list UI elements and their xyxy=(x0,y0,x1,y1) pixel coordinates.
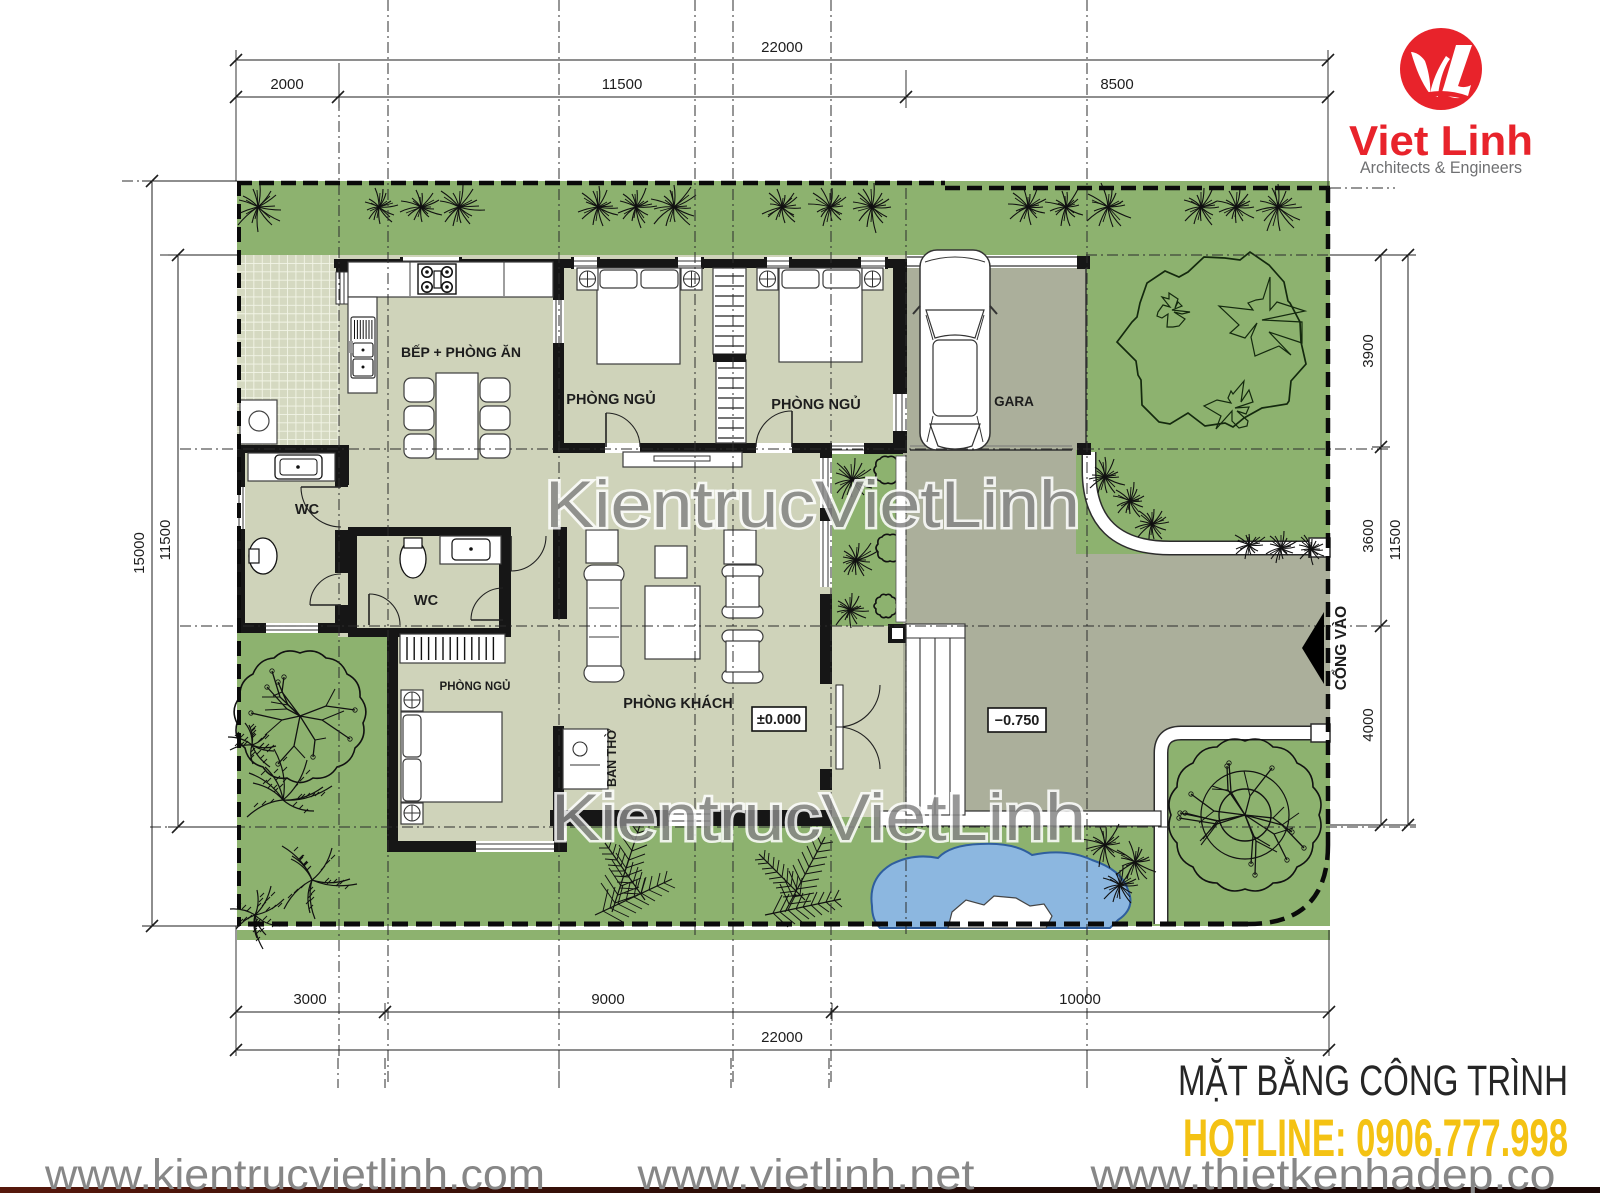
svg-text:Viet Linh: Viet Linh xyxy=(1349,117,1533,164)
svg-text:9000: 9000 xyxy=(591,991,624,1008)
svg-text:PHÒNG NGỦ: PHÒNG NGỦ xyxy=(771,395,860,413)
svg-text:BẾP + PHÒNG ĂN: BẾP + PHÒNG ĂN xyxy=(401,343,521,360)
svg-text:www.thietkenhadep.co: www.thietkenhadep.co xyxy=(1089,1151,1555,1193)
svg-text:KientrucVietLinh: KientrucVietLinh xyxy=(551,780,1086,854)
svg-text:10000: 10000 xyxy=(1059,991,1101,1008)
svg-text:www.kientrucvietlinh.com: www.kientrucvietlinh.com xyxy=(44,1151,545,1193)
svg-text:−0.750: −0.750 xyxy=(995,713,1040,729)
svg-text:CỔNG VÀO: CỔNG VÀO xyxy=(1332,606,1350,690)
svg-text:PHÒNG NGỦ: PHÒNG NGỦ xyxy=(566,390,655,408)
svg-text:www.vietlinh.net: www.vietlinh.net xyxy=(636,1151,974,1193)
svg-text:22000: 22000 xyxy=(761,39,803,56)
svg-text:3600: 3600 xyxy=(1360,519,1377,552)
svg-text:BAN THỜ: BAN THỜ xyxy=(604,729,619,787)
svg-text:3900: 3900 xyxy=(1360,334,1377,367)
svg-text:11500: 11500 xyxy=(157,520,174,561)
svg-text:KientrucVietLinh: KientrucVietLinh xyxy=(545,467,1080,541)
svg-text:PHÒNG KHÁCH: PHÒNG KHÁCH xyxy=(623,694,733,712)
svg-text:4000: 4000 xyxy=(1360,708,1377,741)
svg-text:WC: WC xyxy=(414,593,439,609)
svg-text:11500: 11500 xyxy=(1387,520,1404,561)
svg-text:PHÒNG NGỦ: PHÒNG NGỦ xyxy=(440,680,511,693)
svg-text:3000: 3000 xyxy=(293,991,326,1008)
svg-text:MẶT BẰNG CÔNG TRÌNH: MẶT BẰNG CÔNG TRÌNH xyxy=(1178,1057,1568,1105)
svg-text:15000: 15000 xyxy=(131,532,148,574)
svg-text:GARA: GARA xyxy=(994,394,1034,409)
svg-text:2000: 2000 xyxy=(270,76,303,93)
svg-text:8500: 8500 xyxy=(1100,76,1133,93)
svg-text:11500: 11500 xyxy=(602,76,643,93)
svg-text:22000: 22000 xyxy=(761,1029,803,1046)
svg-text:WC: WC xyxy=(295,502,320,518)
svg-text:±0.000: ±0.000 xyxy=(757,712,801,728)
svg-text:Architects & Engineers: Architects & Engineers xyxy=(1360,159,1522,177)
